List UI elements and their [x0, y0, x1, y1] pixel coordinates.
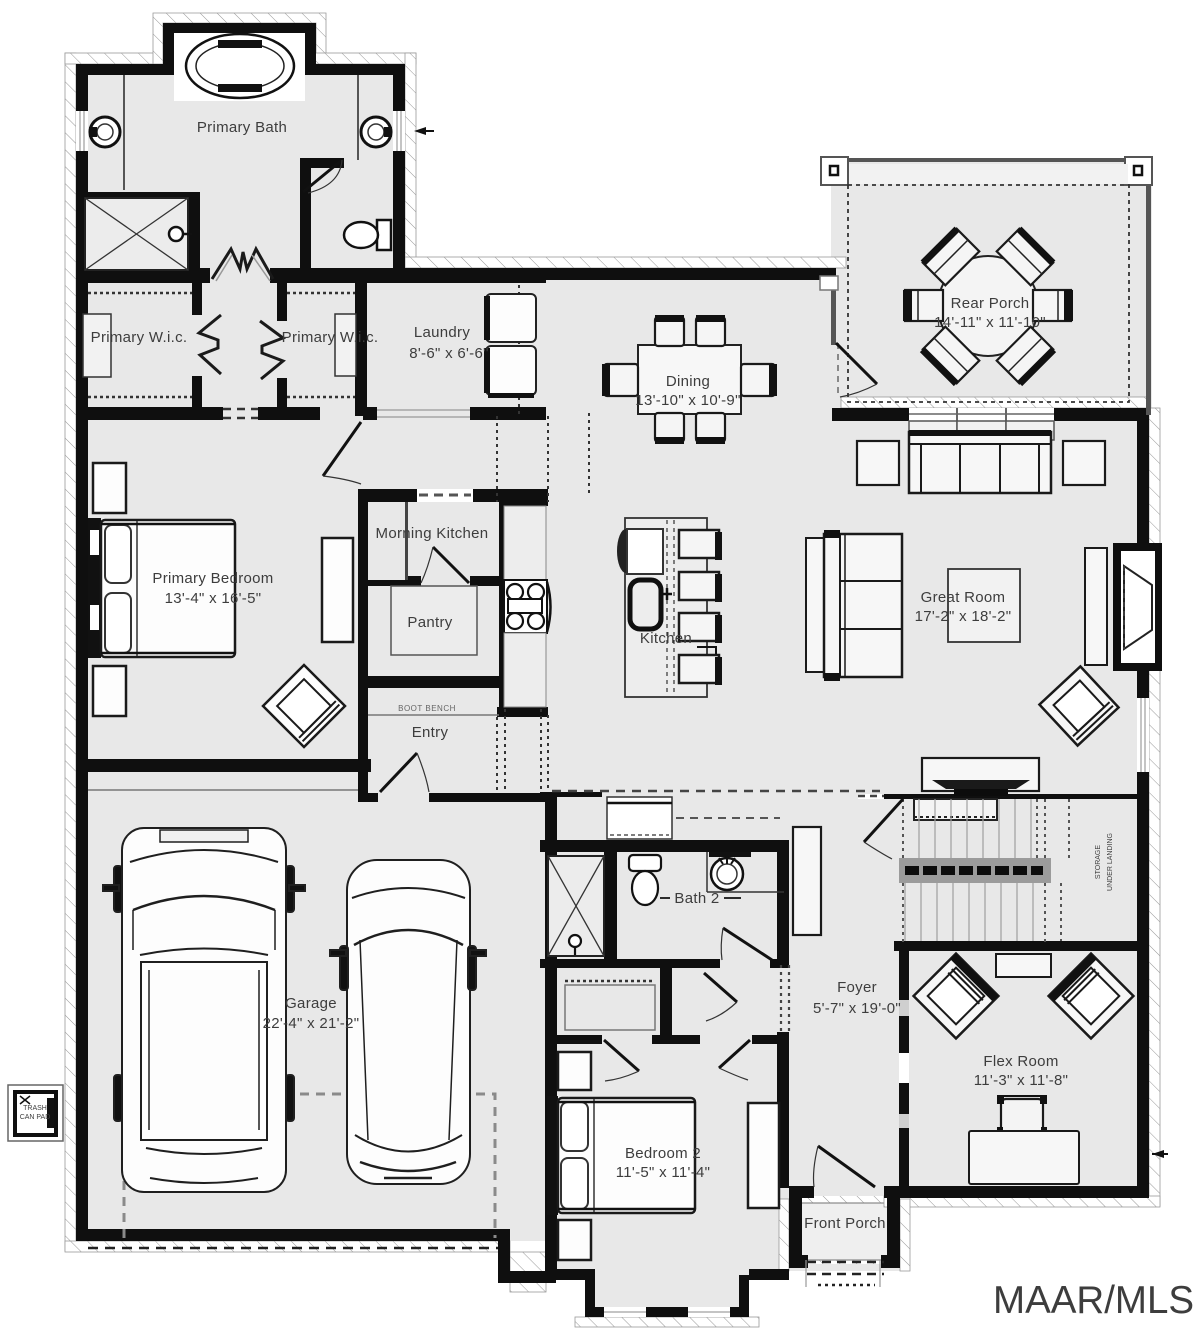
svg-text:11'-5" x 11'-4": 11'-5" x 11'-4" [616, 1164, 711, 1181]
svg-text:Morning Kitchen: Morning Kitchen [376, 525, 489, 542]
svg-text:Bedroom 2: Bedroom 2 [625, 1145, 701, 1162]
svg-text:UNDER LANDING: UNDER LANDING [1107, 833, 1114, 891]
svg-text:13'-4" x 16'-5": 13'-4" x 16'-5" [165, 590, 262, 607]
svg-text:Great Room: Great Room [921, 589, 1006, 606]
svg-text:TRASH: TRASH [23, 1105, 47, 1112]
svg-text:Kitchen: Kitchen [640, 630, 692, 647]
svg-text:14'-11" x 11'-10": 14'-11" x 11'-10" [934, 314, 1046, 331]
svg-text:Foyer: Foyer [837, 979, 877, 996]
svg-text:Pantry: Pantry [407, 614, 452, 631]
svg-text:Primary W.i.c.: Primary W.i.c. [91, 329, 188, 346]
svg-text:BOOT BENCH: BOOT BENCH [398, 704, 456, 713]
svg-text:CAN PAD: CAN PAD [20, 1114, 51, 1121]
svg-text:17'-2" x 18'-2": 17'-2" x 18'-2" [915, 608, 1012, 625]
svg-text:11'-3" x 11'-8": 11'-3" x 11'-8" [974, 1072, 1069, 1089]
svg-text:MAAR/MLS: MAAR/MLS [993, 1279, 1194, 1322]
svg-text:Garage: Garage [285, 995, 337, 1012]
svg-text:Flex Room: Flex Room [983, 1053, 1058, 1070]
svg-text:22'-4" x 21'-2": 22'-4" x 21'-2" [263, 1015, 360, 1032]
svg-text:Entry: Entry [412, 724, 449, 741]
svg-text:Rear Porch: Rear Porch [951, 295, 1030, 312]
svg-text:8'-6" x 6'-6": 8'-6" x 6'-6" [409, 345, 488, 362]
svg-text:STORAGE: STORAGE [1095, 845, 1102, 879]
svg-text:5'-7" x 19'-0": 5'-7" x 19'-0" [813, 1000, 901, 1017]
svg-text:Dining: Dining [666, 373, 710, 390]
svg-text:Primary Bath: Primary Bath [197, 119, 287, 136]
svg-text:Bath 2: Bath 2 [674, 890, 719, 907]
svg-text:13'-10" x 10'-9": 13'-10" x 10'-9" [635, 392, 740, 409]
svg-text:Laundry: Laundry [414, 324, 471, 341]
svg-text:Primary Bedroom: Primary Bedroom [152, 570, 273, 587]
svg-text:Front Porch: Front Porch [804, 1215, 886, 1232]
svg-text:Primary W.i.c.: Primary W.i.c. [282, 329, 379, 346]
